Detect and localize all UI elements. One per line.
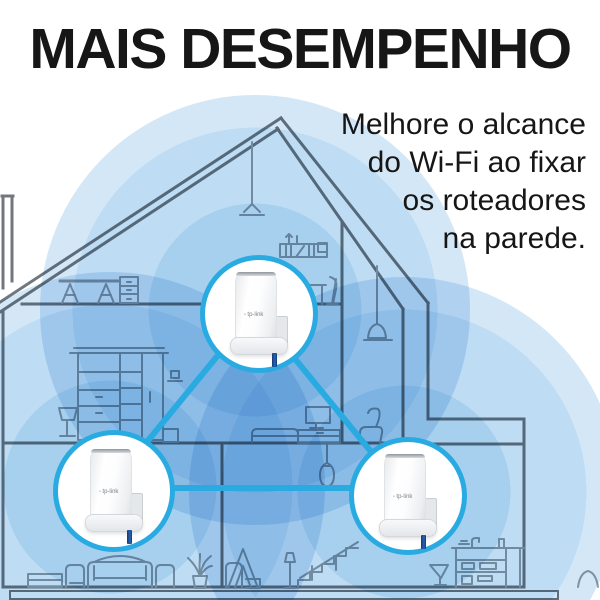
device-circle-bottom-right: tp-link: [349, 437, 467, 555]
tp-link-logo: tp-link: [392, 494, 412, 500]
router-body: tp-link: [90, 449, 132, 520]
tagline-line: Melhore o alcance: [266, 106, 586, 144]
tagline: Melhore o alcance do Wi-Fi ao fixar os r…: [266, 106, 586, 258]
deco-router: tp-link: [230, 272, 288, 360]
ethernet-cable: [127, 530, 132, 544]
router-base: [85, 514, 143, 532]
router-body: tp-link: [384, 454, 426, 525]
tp-link-logo: tp-link: [98, 489, 118, 495]
tagline-line: os roteadores: [266, 182, 586, 220]
deco-router: tp-link: [85, 449, 143, 537]
router-base: [230, 337, 288, 355]
tagline-line: do Wi-Fi ao fixar: [266, 144, 586, 182]
ethernet-cable: [421, 535, 426, 549]
device-circle-bottom-left: tp-link: [53, 430, 175, 552]
tagline-line: na parede.: [266, 220, 586, 258]
headline: MAIS DESEMPENHO: [0, 16, 600, 82]
router-body: tp-link: [235, 272, 277, 343]
router-base: [379, 519, 437, 537]
poster: MAIS DESEMPENHO Melhore o alcance do Wi-…: [0, 0, 600, 600]
tp-link-logo: tp-link: [243, 312, 263, 318]
ethernet-cable: [272, 353, 277, 367]
device-circle-top: tp-link: [200, 255, 318, 373]
deco-router: tp-link: [379, 454, 437, 542]
